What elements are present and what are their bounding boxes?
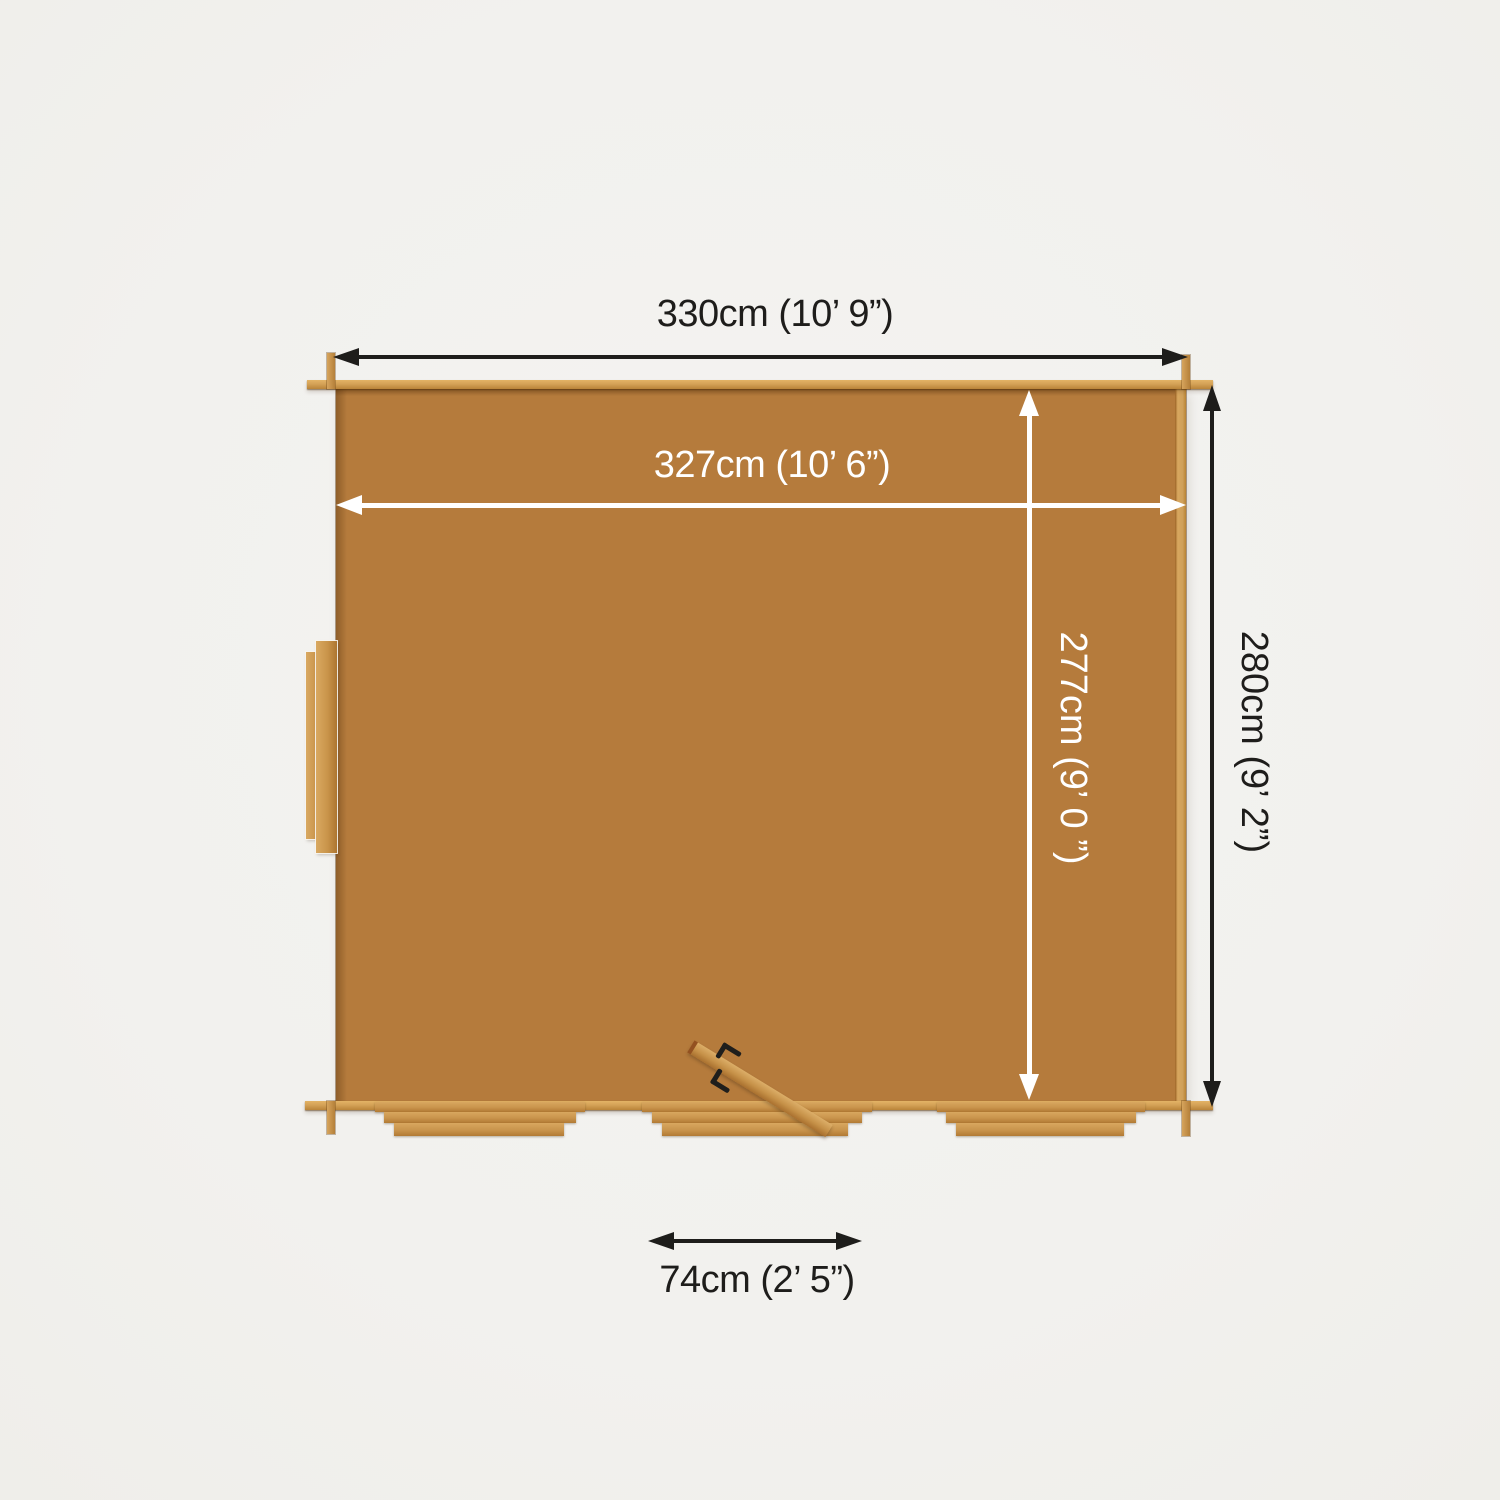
front-window-frame-left	[384, 1112, 576, 1123]
external-width-label: 330cm (10’ 9”)	[657, 293, 894, 337]
top-wall-strip	[307, 380, 1213, 389]
side-window-board-inner	[316, 641, 337, 853]
floor-top-shadow	[336, 389, 1186, 396]
internal-depth-label: 277cm (9’ 0 ”)	[1050, 632, 1094, 865]
corner-log-bottom-right	[1182, 1101, 1190, 1136]
corner-log-bottom-left	[327, 1101, 335, 1134]
front-window-frame-left	[375, 1102, 585, 1112]
front-window-frame-right	[946, 1112, 1136, 1123]
front-window-frame-right	[937, 1102, 1145, 1112]
door-frame	[652, 1112, 862, 1123]
front-window-frame-left	[394, 1123, 564, 1136]
dimension-diagram: 330cm (10’ 9”) 327cm (10’ 6”) 277cm (9’ …	[0, 0, 1500, 1500]
door-width-label: 74cm (2’ 5”)	[659, 1259, 854, 1303]
front-window-frame-right	[956, 1123, 1124, 1136]
internal-width-label: 327cm (10’ 6”)	[654, 444, 891, 488]
external-depth-label: 280cm (9’ 2”)	[1231, 631, 1275, 853]
door-frame	[642, 1102, 872, 1112]
